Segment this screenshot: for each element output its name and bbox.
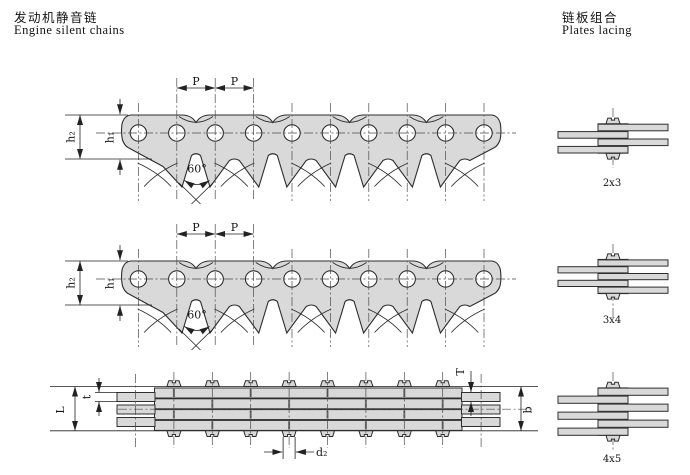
dim-label-h1: h₁ bbox=[104, 132, 117, 144]
dim-label-h1: h₁ bbox=[104, 278, 117, 290]
lacing-label-4x5: 4x5 bbox=[603, 454, 621, 465]
chain-profile-diagram-2: P P h₂ h₁ 60° bbox=[65, 221, 517, 350]
dim-label-t: t bbox=[81, 394, 94, 399]
dim-label-pitch: P bbox=[231, 75, 239, 88]
chain-top-view-diagram: L t T b d₂ bbox=[50, 368, 538, 459]
lacing-figure-4x5: 4x5 bbox=[558, 372, 668, 465]
dim-label-h2: h₂ bbox=[65, 277, 78, 289]
dim-label-h2: h₂ bbox=[65, 131, 78, 143]
dim-label-angle: 60° bbox=[187, 163, 207, 176]
dim-label-d2: d₂ bbox=[316, 446, 327, 459]
lacing-figure-2x3: 2x3 bbox=[558, 108, 668, 189]
lacing-label-2x3: 2x3 bbox=[603, 178, 621, 189]
lacing-figure-3x4: 3x4 bbox=[558, 244, 668, 326]
dim-label-pitch: P bbox=[192, 221, 200, 234]
dim-label-pitch: P bbox=[231, 221, 239, 234]
dim-label-T: T bbox=[454, 368, 467, 376]
dim-label-angle: 60° bbox=[187, 309, 207, 322]
dim-label-L: L bbox=[54, 406, 67, 414]
dim-label-pitch: P bbox=[192, 75, 200, 88]
chain-profile-diagram-1: P P h₂ h₁ 60° bbox=[65, 75, 517, 204]
dim-label-b: b bbox=[522, 406, 535, 413]
drawing-sheet: 发动机静音链 Engine silent chains 链板组合 Plates … bbox=[0, 0, 690, 475]
lacing-label-3x4: 3x4 bbox=[603, 315, 621, 326]
technical-drawing: P P h₂ h₁ 60° P P h₂ h₁ 60° bbox=[0, 0, 690, 475]
